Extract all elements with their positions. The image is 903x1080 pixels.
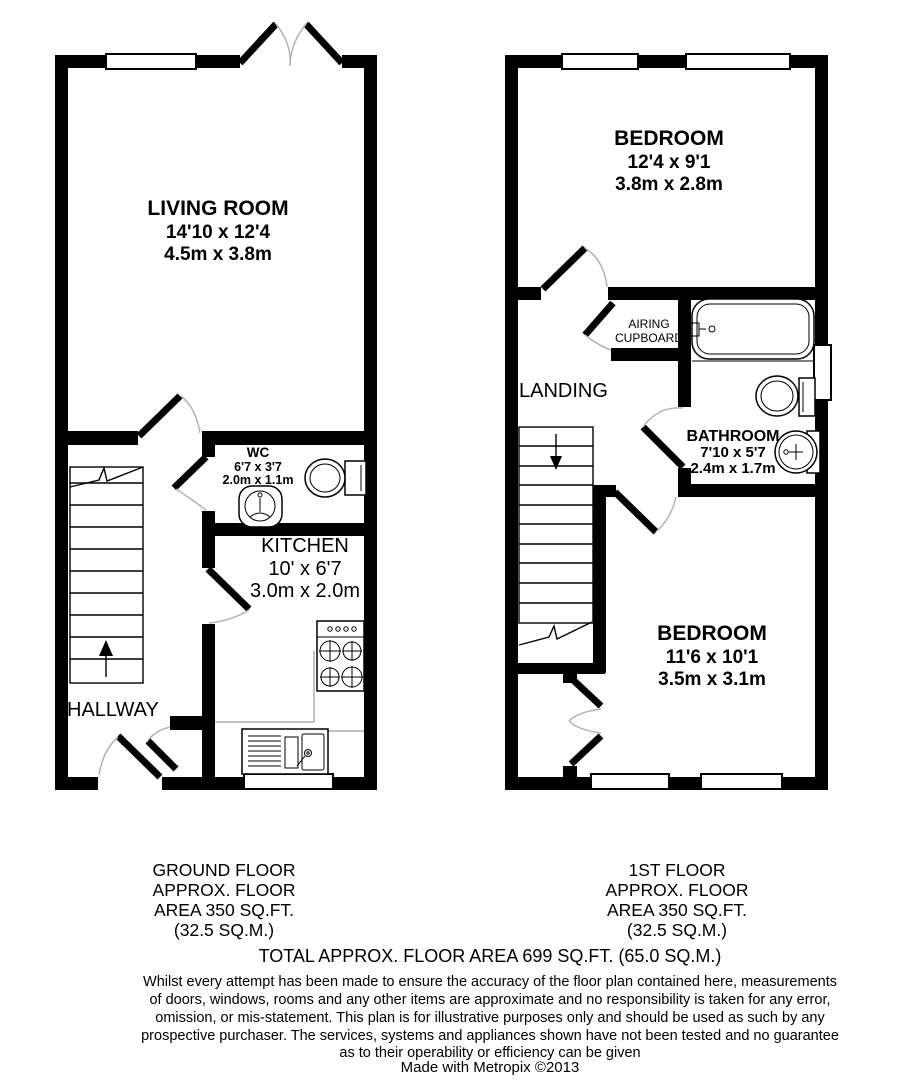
- disclaimer-line: of doors, windows, rooms and any other i…: [149, 992, 830, 1008]
- door-leaf: [240, 24, 276, 63]
- bedroom-front-label: BEDROOM: [614, 127, 724, 150]
- door-swing-arc: [148, 727, 170, 740]
- stairs-down-arrow: [550, 434, 562, 470]
- kitchen-door: [208, 569, 249, 623]
- bathroom-toilet: [756, 376, 815, 416]
- door-leaf: [643, 427, 683, 467]
- bedroom-back-dim-metric: 3.5m x 3.1m: [658, 669, 766, 690]
- wc-door: [174, 457, 206, 510]
- front-double-door: [240, 24, 342, 66]
- ground-floor-plan: LIVING ROOM 14'10 x 12'4 4.5m x 3.8m WC …: [55, 24, 377, 790]
- ground-stairs: [70, 467, 143, 683]
- hallway-label: HALLWAY: [67, 699, 159, 721]
- door-swing-arc: [585, 335, 611, 350]
- bedroom-front-door: [543, 248, 607, 289]
- first-caption-line: APPROX. FLOOR: [606, 880, 749, 900]
- bathroom-sink: [775, 431, 820, 473]
- door-swing-arc: [656, 497, 676, 532]
- bedroom-back-dim-imperial: 11'6 x 10'1: [666, 647, 759, 668]
- window: [106, 54, 196, 69]
- door-leaf: [543, 248, 585, 289]
- ground-caption-line: AREA 350 SQ.FT.: [154, 900, 294, 920]
- door-leaf: [139, 396, 180, 436]
- wc-dim-imperial: 6'7 x 3'7: [234, 460, 282, 474]
- window: [686, 54, 790, 69]
- bedroom-back-label: BEDROOM: [657, 622, 767, 645]
- window: [591, 774, 669, 789]
- living-room-door: [139, 396, 200, 436]
- floorplan-page: LIVING ROOM 14'10 x 12'4 4.5m x 3.8m WC …: [0, 0, 903, 1080]
- door-swing-arc: [209, 610, 249, 623]
- bathroom-dim-imperial: 7'10 x 5'7: [700, 444, 766, 461]
- door-swing-arc: [569, 709, 601, 721]
- bathroom-label: BATHROOM: [686, 428, 779, 445]
- airing-cupboard-door: [585, 303, 613, 350]
- kitchen-sink-unit: [242, 729, 328, 774]
- airing-cupboard-label-line1: AIRING: [628, 317, 669, 331]
- bathroom-door: [643, 408, 683, 467]
- bathroom-dim-metric: 2.4m x 1.7m: [690, 460, 775, 477]
- entrance-door: [99, 727, 176, 777]
- first-floor-plan: BEDROOM 12'4 x 9'1 3.8m x 2.8m AIRING CU…: [505, 54, 831, 790]
- door-leaf: [208, 569, 249, 609]
- window: [701, 774, 782, 789]
- first-stairs: [519, 427, 593, 645]
- metropix-credit: Made with Metropix ©2013: [401, 1059, 580, 1076]
- disclaimer-line: prospective purchaser. The services, sys…: [141, 1028, 839, 1044]
- wc-toilet: [305, 459, 366, 497]
- wc-sink: [239, 486, 282, 527]
- kitchen-dim-metric: 3.0m x 2.0m: [250, 580, 360, 602]
- door-swing-arc: [181, 396, 200, 433]
- total-area-label: TOTAL APPROX. FLOOR AREA 699 SQ.FT. (65.…: [259, 946, 722, 966]
- floorplan-drawing: LIVING ROOM 14'10 x 12'4 4.5m x 3.8m WC …: [0, 0, 903, 1080]
- kitchen-stove: [317, 621, 364, 691]
- door-swing-arc: [643, 408, 683, 427]
- window: [814, 345, 831, 400]
- ground-caption-line: APPROX. FLOOR: [153, 880, 296, 900]
- first-room-labels: BEDROOM 12'4 x 9'1 3.8m x 2.8m AIRING CU…: [519, 127, 780, 690]
- bathtub: [690, 299, 814, 361]
- window: [244, 774, 333, 789]
- bedroom-front-dim-metric: 3.8m x 2.8m: [615, 174, 723, 195]
- first-floor-caption: 1ST FLOOR APPROX. FLOOR AREA 350 SQ.FT. …: [606, 860, 749, 940]
- stairs-break-line: [70, 467, 143, 487]
- disclaimer-line: Whilst every attempt has been made to en…: [143, 974, 837, 990]
- ground-caption-line: GROUND FLOOR: [153, 860, 296, 880]
- door-leaf: [174, 457, 206, 488]
- door-leaf: [571, 736, 601, 764]
- wc-label: WC: [247, 445, 270, 460]
- first-caption-line: 1ST FLOOR: [629, 860, 726, 880]
- living-room-dim-imperial: 14'10 x 12'4: [166, 222, 271, 243]
- door-swing-arc: [99, 737, 118, 775]
- landing-label: LANDING: [519, 380, 608, 402]
- door-swing-arc: [276, 24, 290, 66]
- door-swing-arc: [290, 24, 306, 66]
- bedroom-back-door: [615, 492, 676, 532]
- door-leaf: [615, 492, 656, 532]
- door-swing-arc: [569, 721, 601, 733]
- ground-windows: [106, 54, 333, 789]
- door-swing-arc: [176, 489, 206, 510]
- kitchen-label: KITCHEN: [261, 535, 349, 557]
- living-room-label: LIVING ROOM: [147, 197, 288, 220]
- disclaimer: Whilst every attempt has been made to en…: [141, 974, 839, 1061]
- living-room-dim-metric: 4.5m x 3.8m: [164, 244, 272, 265]
- door-leaf: [585, 303, 613, 335]
- stairs-break-line: [519, 622, 592, 645]
- door-swing-arc: [585, 248, 607, 287]
- wc-dim-metric: 2.0m x 1.1m: [223, 473, 294, 487]
- ground-floor-caption: GROUND FLOOR APPROX. FLOOR AREA 350 SQ.F…: [153, 860, 296, 940]
- ground-caption-line: (32.5 SQ.M.): [174, 920, 274, 940]
- door-leaf: [571, 678, 601, 706]
- door-leaf: [306, 24, 342, 63]
- window: [562, 54, 638, 69]
- understairs-closet-doors: [569, 678, 601, 764]
- first-caption-line: (32.5 SQ.M.): [627, 920, 727, 940]
- kitchen-dim-imperial: 10' x 6'7: [268, 558, 341, 580]
- airing-cupboard-label-line2: CUPBOARD: [615, 331, 683, 345]
- first-caption-line: AREA 350 SQ.FT.: [607, 900, 747, 920]
- bedroom-front-dim-imperial: 12'4 x 9'1: [628, 152, 711, 173]
- disclaimer-line: omission, or mis-statement. This plan is…: [155, 1010, 825, 1026]
